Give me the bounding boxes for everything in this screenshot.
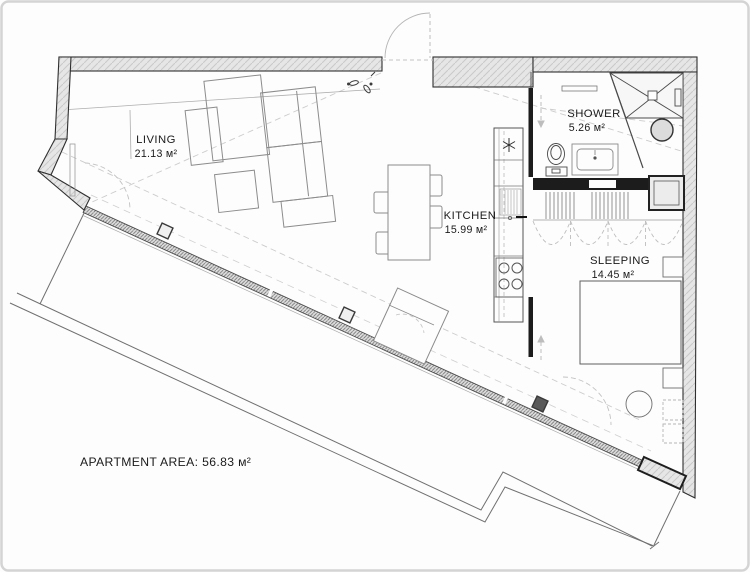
nightstand — [663, 257, 683, 277]
kitchen-counter — [494, 128, 523, 322]
partition-kitchen-sleeping — [529, 297, 534, 357]
nightstand — [663, 368, 683, 388]
apartment-area-label: APARTMENT AREA: 56.83 м² — [80, 455, 251, 469]
living-label: LIVING — [136, 134, 176, 146]
wall-top-left — [59, 57, 382, 71]
sleeping-area: 14.45 м² — [592, 269, 635, 281]
wall-right — [683, 72, 697, 498]
washing-machine-icon — [651, 119, 673, 141]
kitchen-area: 15.99 м² — [445, 224, 488, 236]
hanging-clothes-lines — [546, 192, 628, 219]
furniture-dashed — [663, 400, 683, 420]
sofa-module — [185, 107, 223, 165]
entrance-door — [382, 13, 433, 60]
wall-left — [55, 57, 71, 139]
wall-left-diagonal — [38, 171, 90, 210]
shower-room — [546, 73, 683, 176]
zone-boundary-lines — [61, 89, 380, 159]
glazed-facade — [82, 195, 651, 471]
partition-shower-sleeping — [533, 178, 651, 190]
curtain-line — [91, 195, 651, 451]
kitchen-label: KITCHEN — [444, 210, 497, 222]
door-swing-arc — [563, 377, 611, 425]
sofa-ottoman — [281, 196, 336, 228]
wall-corner-bottom-right — [638, 457, 686, 489]
sleeping-label: SLEEPING — [590, 255, 650, 267]
furniture-dashed — [663, 424, 683, 443]
wall-top-right — [533, 57, 697, 72]
duct-shaft — [649, 176, 684, 210]
column — [157, 223, 173, 239]
shelf — [562, 86, 597, 91]
sight-line — [62, 152, 640, 420]
faucet-icon — [593, 156, 596, 159]
armchair — [215, 170, 259, 212]
wardrobe-door-arcs — [533, 221, 683, 248]
toilet-icon — [546, 144, 567, 177]
facade-sill-line — [82, 215, 642, 471]
kitchen-unit — [494, 128, 527, 322]
chair-round — [626, 391, 652, 417]
column — [339, 307, 355, 323]
floor-plan-canvas: LIVING 21.13 м² KITCHEN 15.99 м² SHOWER … — [0, 0, 750, 572]
column — [532, 396, 548, 412]
terrace-door-unit — [373, 288, 448, 364]
sofa-chaise — [267, 141, 328, 202]
shower-label: SHOWER — [567, 108, 621, 120]
shower-tray-icon — [610, 73, 683, 118]
shower-area: 5.26 м² — [569, 122, 606, 134]
sleeping-room — [563, 257, 683, 443]
dining-table — [388, 165, 430, 260]
living-area: 21.13 м² — [135, 148, 178, 160]
dining-set — [374, 165, 442, 260]
bathroom-sink-icon — [572, 144, 618, 175]
partition-kitchen-shower — [529, 88, 534, 177]
drain — [648, 91, 657, 100]
door-swing-arc — [385, 13, 430, 58]
terrace-outline — [10, 207, 680, 549]
floor-plan-drawing: LIVING 21.13 м² KITCHEN 15.99 м² SHOWER … — [0, 0, 750, 572]
wall-top-entry — [433, 57, 533, 87]
window-wall — [83, 206, 646, 468]
sliding-door-arrows — [538, 95, 544, 363]
bed — [580, 281, 681, 364]
wall-left-jog — [38, 139, 67, 175]
facade-columns — [157, 223, 548, 412]
